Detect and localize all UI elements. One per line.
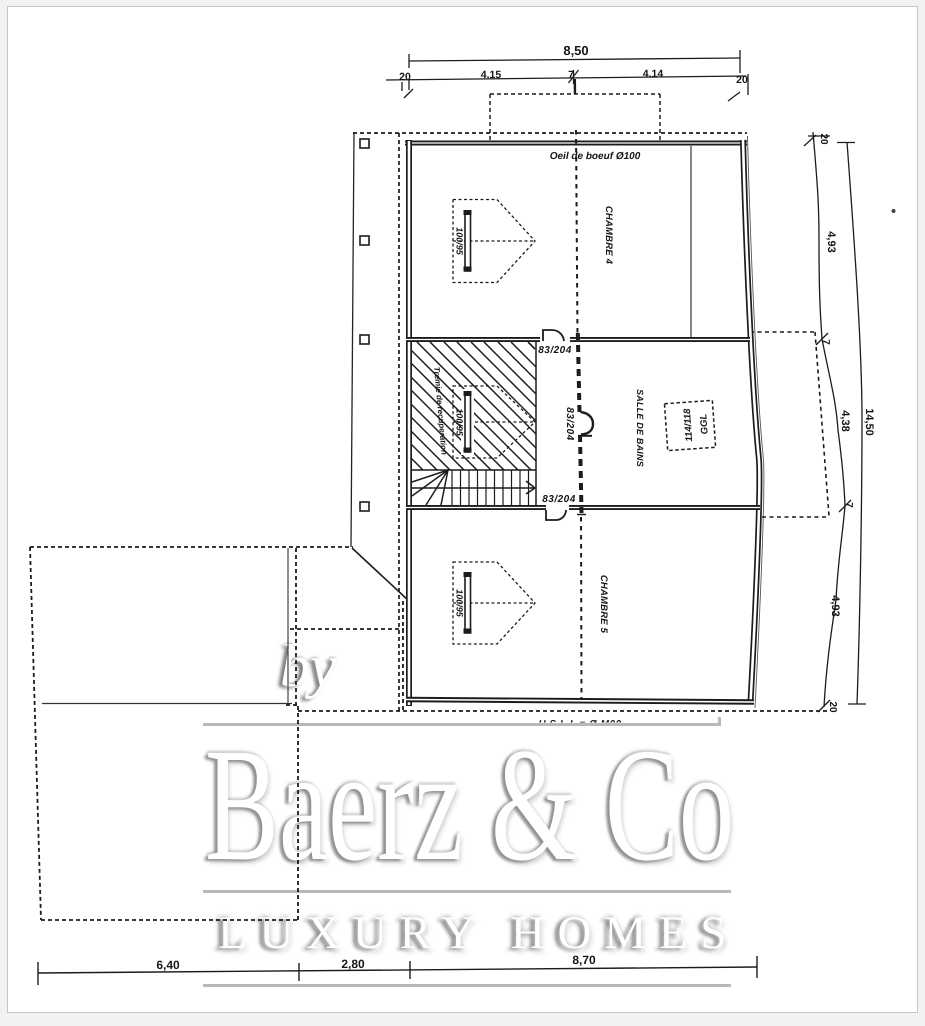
svg-text:4.15: 4.15 [481,69,502,81]
svg-text:7: 7 [568,69,574,81]
svg-text:Tremie de recuperation: Tremie de recuperation [432,366,449,455]
svg-text:H.S.L.L = Ø M00: H.S.L.L = Ø M00 [538,719,621,730]
svg-text:20: 20 [736,74,748,86]
svg-text:GGL: GGL [698,413,710,434]
svg-text:100/95: 100/95 [455,227,465,256]
svg-text:114/118: 114/118 [682,408,695,442]
svg-text:100/95: 100/95 [455,589,465,618]
svg-text:20: 20 [818,133,829,145]
svg-text:4,93: 4,93 [825,231,837,252]
svg-text:CHAMBRE 5: CHAMBRE 5 [598,575,609,634]
svg-text:8,70: 8,70 [572,953,596,967]
svg-text:7: 7 [820,339,831,345]
svg-text:2,80: 2,80 [341,957,365,971]
svg-text:8,50: 8,50 [563,43,588,58]
svg-text:6,40: 6,40 [156,958,180,972]
svg-text:4,38: 4,38 [839,410,851,431]
svg-text:20: 20 [827,701,838,713]
svg-text:7: 7 [843,502,854,508]
svg-text:83/204: 83/204 [564,407,575,441]
svg-text:20: 20 [399,71,411,83]
svg-text:83/204: 83/204 [542,494,576,505]
svg-text:CHAMBRE 4: CHAMBRE 4 [603,206,614,265]
svg-text:100/95: 100/95 [455,408,465,437]
svg-text:83/204: 83/204 [538,345,572,356]
svg-text:Oeil de boeuf Ø100: Oeil de boeuf Ø100 [550,151,641,162]
svg-text:14,50: 14,50 [863,408,875,436]
svg-text:4,93: 4,93 [829,595,841,616]
svg-text:SALLE DE BAINS: SALLE DE BAINS [635,389,645,467]
svg-text:4.14: 4.14 [643,68,664,80]
